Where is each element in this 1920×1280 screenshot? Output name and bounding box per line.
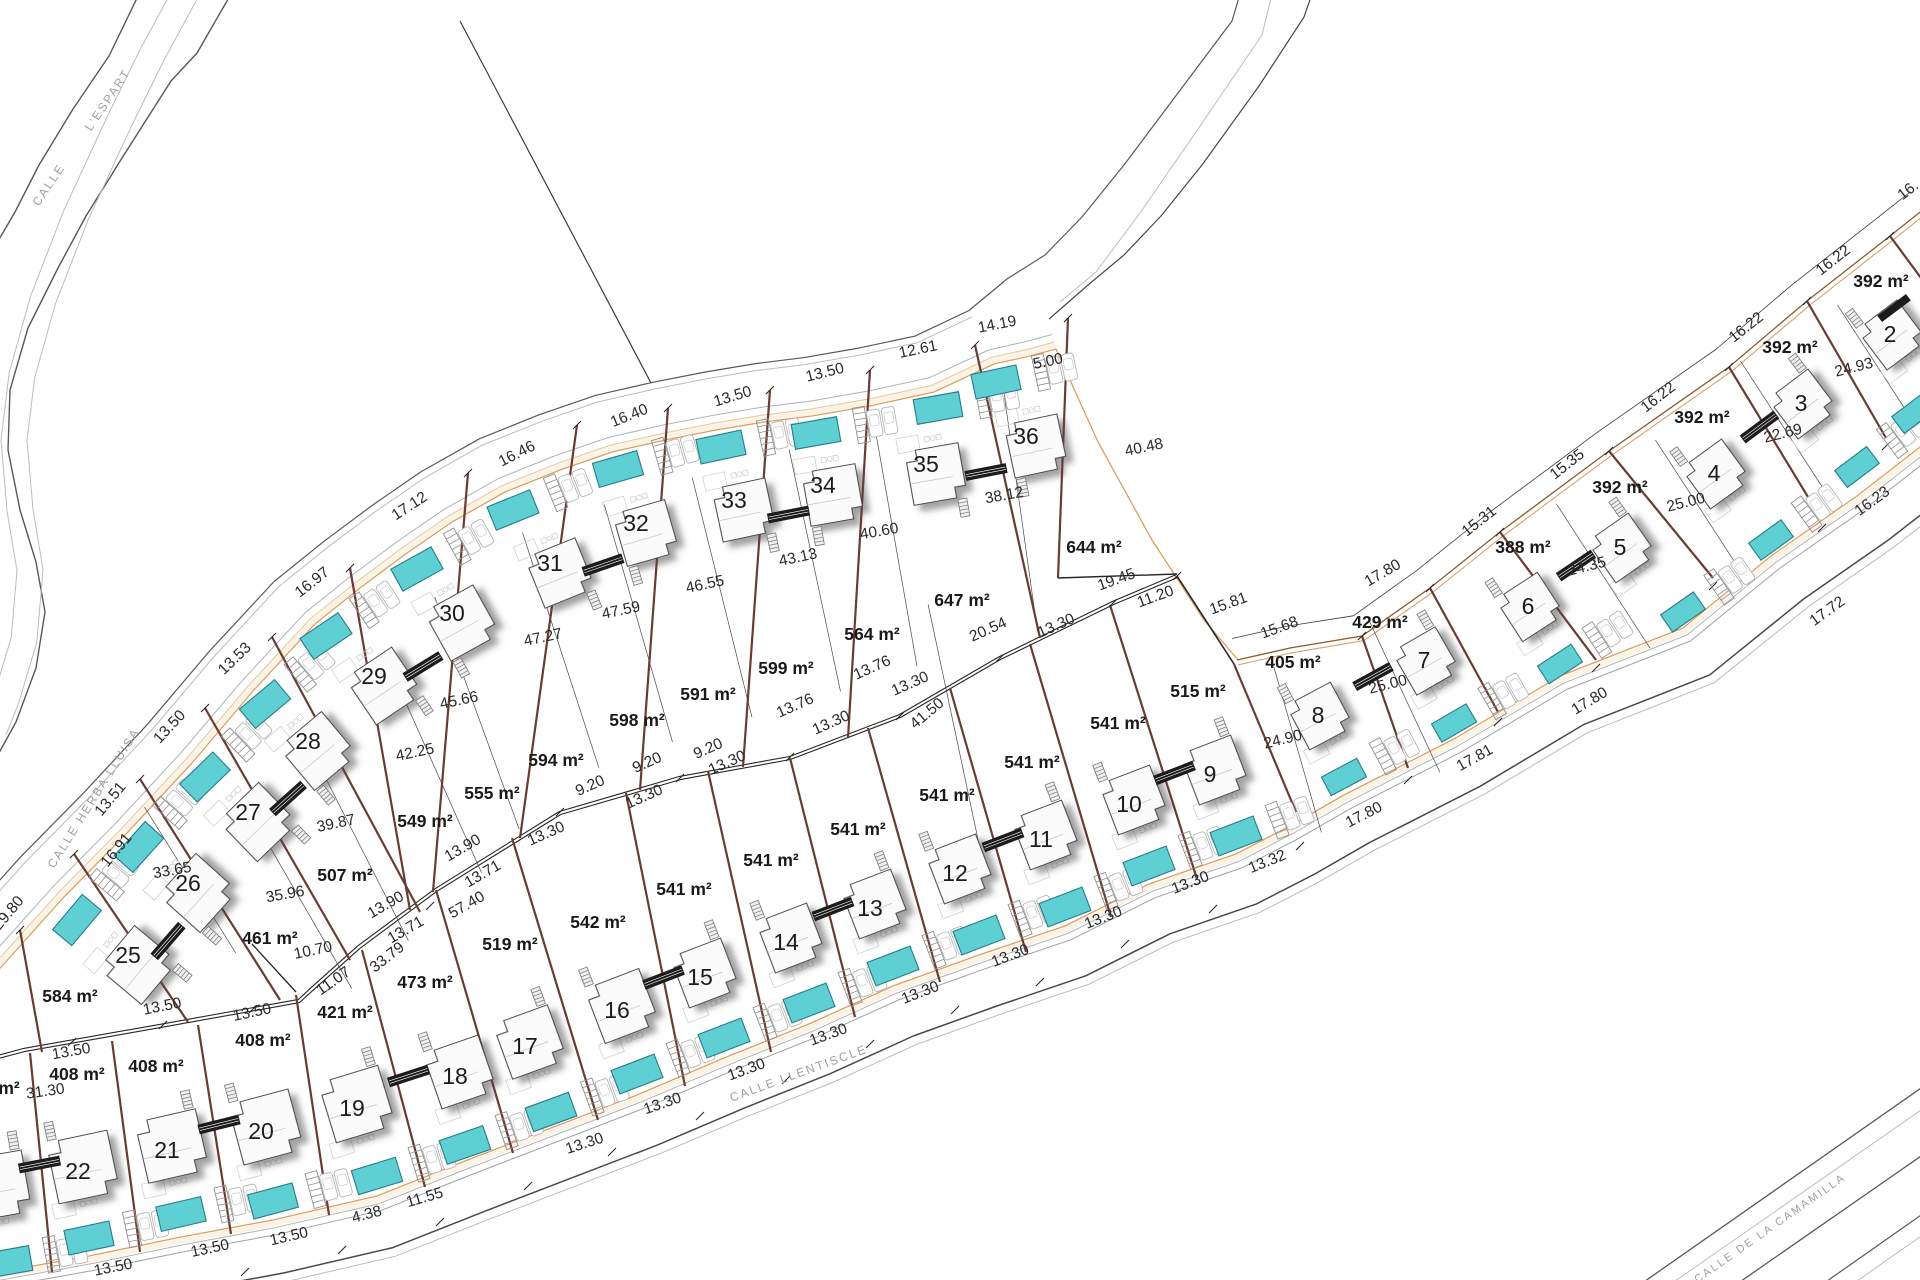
svg-text:644 m²: 644 m² <box>1066 537 1122 557</box>
svg-text:519 m²: 519 m² <box>482 934 538 954</box>
svg-text:25: 25 <box>115 942 141 968</box>
svg-text:429 m²: 429 m² <box>1352 612 1408 632</box>
svg-text:392 m²: 392 m² <box>1853 271 1909 291</box>
svg-text:19: 19 <box>339 1095 365 1121</box>
svg-text:5: 5 <box>1614 534 1627 560</box>
svg-text:36: 36 <box>1013 423 1039 449</box>
svg-text:647 m²: 647 m² <box>934 590 990 610</box>
svg-text:392 m²: 392 m² <box>1762 337 1818 357</box>
svg-text:18: 18 <box>442 1063 468 1089</box>
svg-text:507 m²: 507 m² <box>317 865 373 885</box>
svg-text:541 m²: 541 m² <box>1004 752 1060 772</box>
svg-text:7: 7 <box>1418 647 1431 673</box>
svg-text:3: 3 <box>1795 390 1808 416</box>
svg-text:28: 28 <box>295 728 321 754</box>
svg-text:405 m²: 405 m² <box>1265 652 1321 672</box>
svg-text:598 m²: 598 m² <box>609 710 665 730</box>
svg-text:392 m²: 392 m² <box>1592 477 1648 497</box>
svg-text:6: 6 <box>1522 593 1535 619</box>
svg-text:29: 29 <box>361 663 387 689</box>
svg-text:541 m²: 541 m² <box>919 785 975 805</box>
svg-text:33: 33 <box>721 487 747 513</box>
svg-text:542 m²: 542 m² <box>570 912 626 932</box>
svg-text:27: 27 <box>235 799 261 825</box>
svg-text:541 m²: 541 m² <box>1090 713 1146 733</box>
svg-text:408 m²: 408 m² <box>128 1056 184 1076</box>
svg-text:13: 13 <box>857 895 883 921</box>
svg-text:12: 12 <box>942 860 968 886</box>
svg-text:461 m²: 461 m² <box>242 928 298 948</box>
svg-text:408 m²: 408 m² <box>235 1030 291 1050</box>
svg-text:32: 32 <box>623 510 649 536</box>
svg-text:599 m²: 599 m² <box>758 658 814 678</box>
svg-text:30: 30 <box>439 600 465 626</box>
svg-text:22: 22 <box>65 1158 91 1184</box>
svg-text:408 m²: 408 m² <box>0 1078 20 1098</box>
svg-text:17: 17 <box>512 1033 538 1059</box>
svg-text:21: 21 <box>154 1137 180 1163</box>
svg-text:549 m²: 549 m² <box>397 811 453 831</box>
svg-text:14: 14 <box>773 929 799 955</box>
svg-text:584 m²: 584 m² <box>42 986 98 1006</box>
svg-text:392 m²: 392 m² <box>1674 407 1730 427</box>
svg-text:2: 2 <box>1884 321 1897 347</box>
svg-text:4: 4 <box>1708 460 1721 486</box>
svg-text:34: 34 <box>810 472 836 498</box>
svg-text:8: 8 <box>1312 702 1325 728</box>
svg-text:594 m²: 594 m² <box>528 750 584 770</box>
svg-text:473 m²: 473 m² <box>397 972 453 992</box>
svg-text:16: 16 <box>604 997 630 1023</box>
svg-text:564 m²: 564 m² <box>844 624 900 644</box>
svg-text:591 m²: 591 m² <box>680 684 736 704</box>
svg-text:515 m²: 515 m² <box>1170 681 1226 701</box>
svg-text:541 m²: 541 m² <box>656 879 712 899</box>
svg-text:9: 9 <box>1204 761 1217 787</box>
svg-text:35: 35 <box>913 451 939 477</box>
svg-text:11: 11 <box>1029 826 1053 852</box>
svg-text:541 m²: 541 m² <box>830 819 886 839</box>
svg-text:31: 31 <box>537 550 563 576</box>
svg-text:421 m²: 421 m² <box>317 1002 373 1022</box>
svg-text:388 m²: 388 m² <box>1495 537 1551 557</box>
svg-text:10: 10 <box>1116 791 1142 817</box>
svg-text:555 m²: 555 m² <box>464 783 520 803</box>
svg-text:20: 20 <box>248 1118 274 1144</box>
svg-text:15: 15 <box>687 964 713 990</box>
svg-text:541 m²: 541 m² <box>743 850 799 870</box>
